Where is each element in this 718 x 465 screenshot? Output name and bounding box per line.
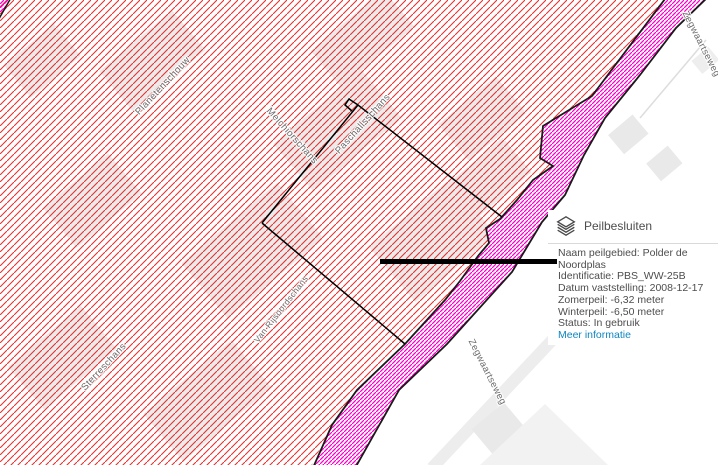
popup-title: Peilbesluiten — [584, 219, 652, 233]
popup-field-row: Zomerpeil: -6,32 meter — [558, 295, 718, 307]
meer-informatie-link[interactable]: Meer informatie — [548, 330, 718, 342]
popup-fields: Naam peilgebied: Polder de NoordplasIden… — [548, 248, 718, 330]
popup-field-row: Naam peilgebied: Polder de Noordplas — [558, 248, 718, 271]
popup-divider — [548, 243, 718, 244]
popup-header: Peilbesluiten — [548, 210, 718, 238]
map-viewport[interactable]: PlanetenschouwMelchiorschansPaschalissch… — [0, 0, 718, 465]
feature-popup: Peilbesluiten Naam peilgebied: Polder de… — [548, 210, 718, 345]
callout-line — [380, 259, 557, 264]
layers-icon — [556, 215, 576, 237]
